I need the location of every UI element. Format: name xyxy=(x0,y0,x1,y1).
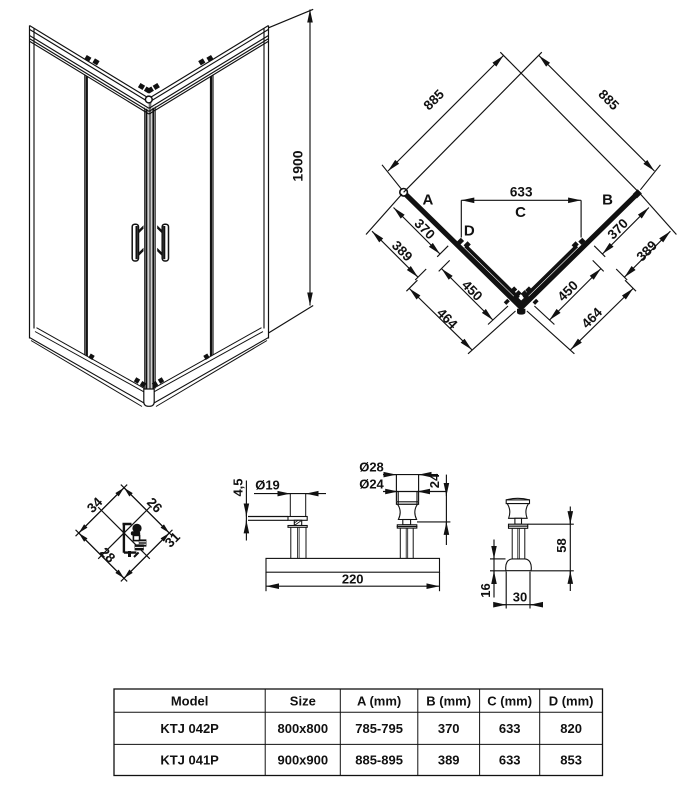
svg-text:820: 820 xyxy=(560,721,582,736)
svg-text:30: 30 xyxy=(513,590,527,605)
svg-text:KTJ 041P: KTJ 041P xyxy=(160,753,219,768)
svg-text:Ø28: Ø28 xyxy=(359,459,384,474)
svg-text:A: A xyxy=(422,192,433,209)
svg-text:800x800: 800x800 xyxy=(277,721,328,736)
svg-text:24: 24 xyxy=(427,473,442,488)
svg-text:Size: Size xyxy=(290,693,316,708)
svg-text:58: 58 xyxy=(554,538,569,552)
svg-text:900x900: 900x900 xyxy=(277,753,328,768)
svg-text:389: 389 xyxy=(438,753,460,768)
svg-text:220: 220 xyxy=(342,571,364,586)
svg-text:633: 633 xyxy=(510,184,533,199)
svg-text:853: 853 xyxy=(560,753,582,768)
svg-text:Model: Model xyxy=(171,693,209,708)
svg-text:370: 370 xyxy=(438,721,460,736)
svg-text:A (mm): A (mm) xyxy=(357,693,401,708)
svg-text:B: B xyxy=(602,192,613,209)
svg-text:4,5: 4,5 xyxy=(231,478,246,496)
svg-text:16: 16 xyxy=(478,583,493,597)
svg-text:Ø19: Ø19 xyxy=(255,477,280,492)
svg-text:C: C xyxy=(515,204,526,221)
svg-text:785-795: 785-795 xyxy=(355,721,403,736)
svg-text:1900: 1900 xyxy=(290,150,306,181)
svg-text:D: D xyxy=(464,223,475,240)
svg-text:B (mm): B (mm) xyxy=(426,693,471,708)
svg-text:D (mm): D (mm) xyxy=(549,693,594,708)
svg-text:633: 633 xyxy=(499,753,521,768)
svg-text:Ø24: Ø24 xyxy=(359,476,384,491)
svg-text:C (mm): C (mm) xyxy=(487,693,532,708)
svg-text:885-895: 885-895 xyxy=(355,753,403,768)
svg-text:KTJ 042P: KTJ 042P xyxy=(160,721,219,736)
svg-text:633: 633 xyxy=(499,721,521,736)
